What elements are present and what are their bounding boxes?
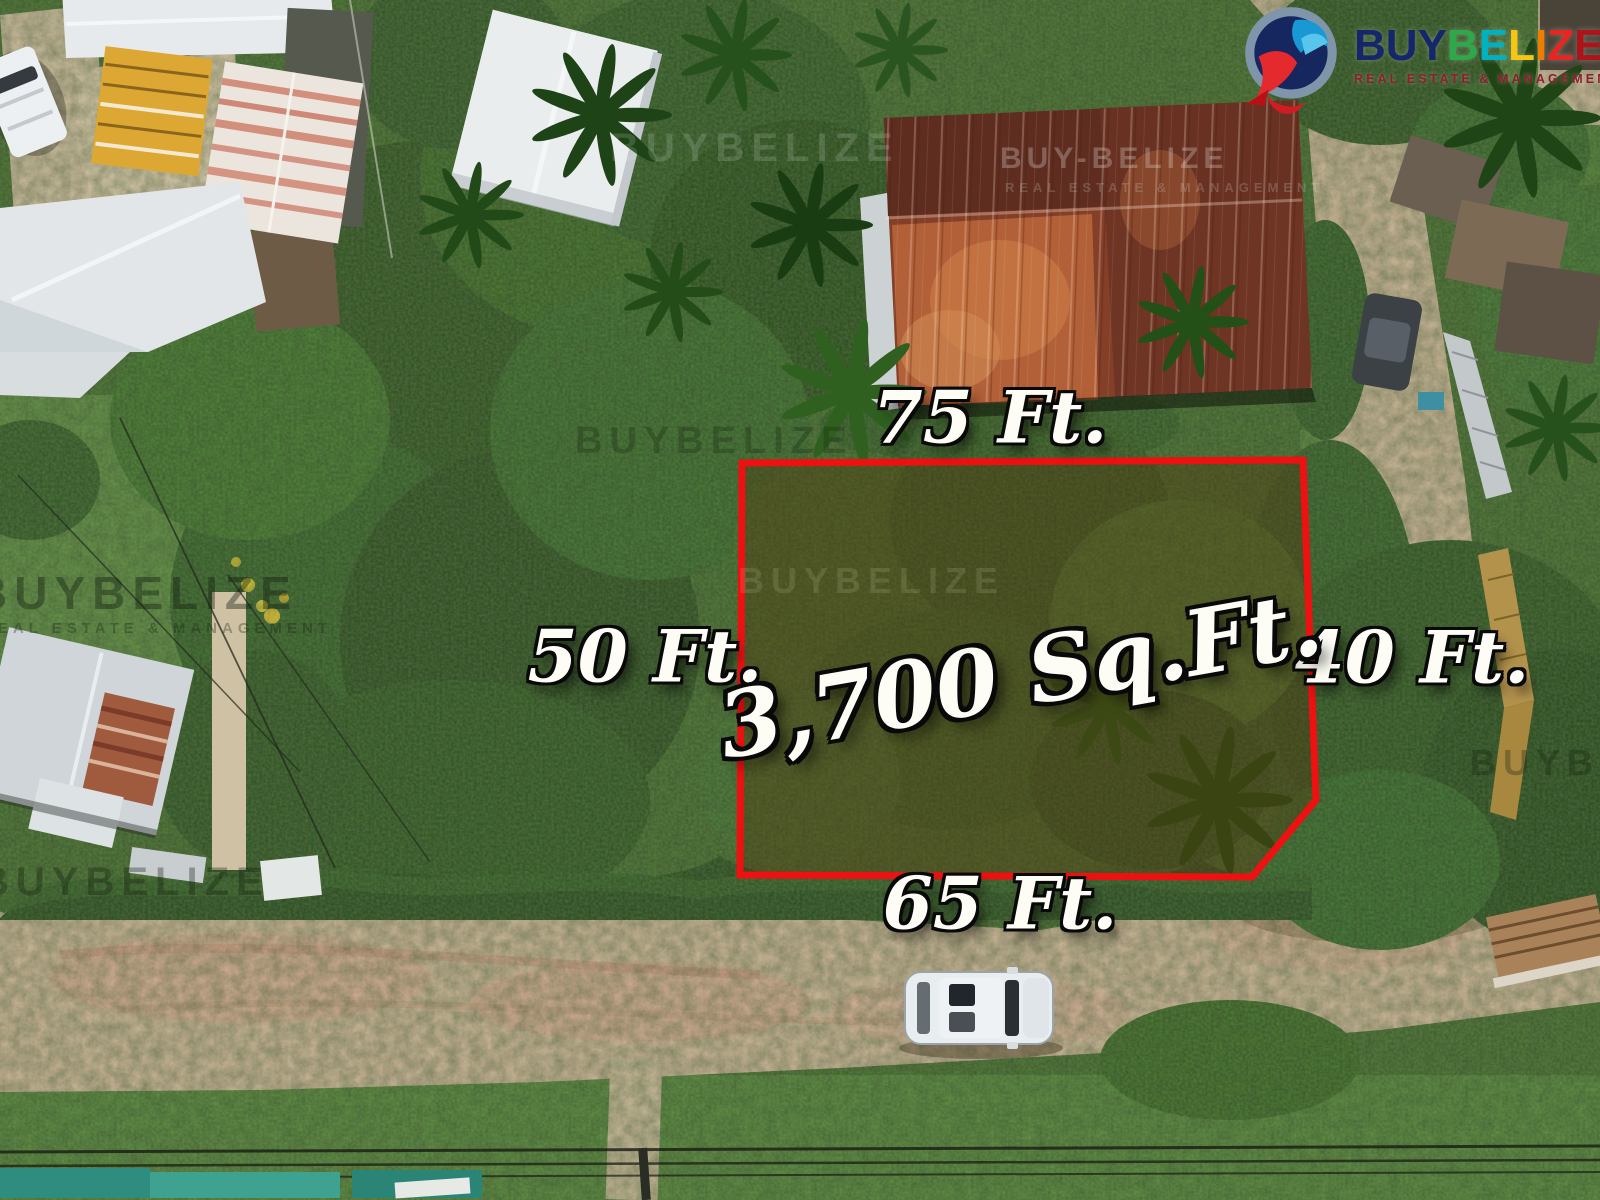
watermark-tagline: REAL ESTATE & MANAGEMENT [0,620,332,637]
watermark-roof-tagline: REAL ESTATE & MANAGEMENT [1005,180,1324,195]
watermark: BUYBELIZE [0,566,298,620]
brand-tagline: REAL ESTATE & MANAGEMENT [1354,72,1600,86]
white-suv [899,967,1063,1059]
dimension-label-right: 40 Ft. [1295,615,1530,700]
watermark: BUYBELIZE [738,560,1005,602]
watermark: BUYBELIZE [575,420,853,463]
dimension-label-bottom: 65 Ft. [883,861,1118,946]
watermark: BUYBELIZE [1470,742,1600,784]
teal-fence [0,1168,482,1199]
brand-logo: BUYBELIZE REAL ESTATE & MANAGEMENT [1238,2,1600,120]
dimension-label-top: 75 Ft. [873,375,1108,460]
watermark-roof: BUY-BELIZE [1000,142,1228,176]
brand-bird-icon [1238,2,1348,120]
watermark: BUYBELIZE [610,126,900,171]
lumber-stack [91,46,213,176]
brand-wordmark: BUYBELIZE [1354,24,1600,68]
brand-text-block: BUYBELIZE REAL ESTATE & MANAGEMENT [1354,24,1600,86]
aerial-photo-stage: 75 Ft. 50 Ft. 40 Ft. 65 Ft. 3,700 Sq.Ft.… [0,0,1600,1200]
watermark: BUYBELIZE [0,860,270,905]
